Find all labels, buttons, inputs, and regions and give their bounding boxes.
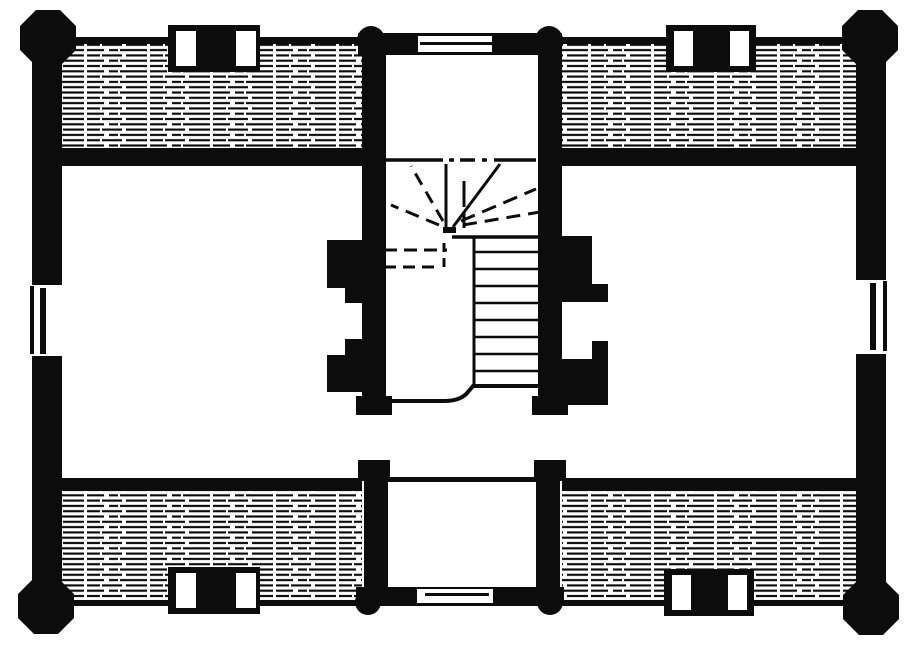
left-wall-lower bbox=[32, 356, 62, 592]
round-post-bottom-bay-left bbox=[355, 589, 381, 615]
bottom-bay-wall-left bbox=[364, 478, 388, 590]
top-bay-window-sash-line bbox=[420, 42, 492, 45]
right-wall-upper bbox=[856, 52, 886, 280]
right-wall-lower bbox=[856, 354, 886, 592]
rear-wall-left bbox=[62, 478, 362, 491]
flue-bottom-left-a bbox=[176, 573, 196, 608]
left-window-sash-bar bbox=[40, 288, 46, 354]
flue-top-right-b bbox=[730, 31, 749, 66]
round-post-top-bay-left bbox=[357, 26, 385, 54]
bottom-bay-room-line bbox=[388, 477, 536, 482]
right-window-sash-bar bbox=[870, 283, 876, 350]
bottom-bay-wall-left-cap bbox=[358, 460, 390, 481]
front-wall-right bbox=[538, 148, 856, 166]
bottom-bay-window-sash-line bbox=[425, 593, 489, 596]
bottom-bay-wall-right bbox=[536, 478, 560, 590]
flue-top-right-a bbox=[674, 31, 693, 66]
front-wall-left bbox=[62, 148, 386, 166]
flue-bottom-left-b bbox=[236, 573, 256, 608]
stair-hall-wall-left-foot bbox=[356, 396, 392, 415]
flue-bottom-right-b bbox=[728, 575, 747, 610]
flue-bottom-right-a bbox=[672, 575, 691, 610]
flue-top-left-b bbox=[236, 31, 256, 66]
bottom-bay-wall-right-cap bbox=[534, 460, 566, 481]
left-window-outer-line bbox=[30, 286, 34, 354]
right-window-outer-line bbox=[883, 281, 887, 351]
round-post-bottom-bay-right bbox=[537, 589, 563, 615]
stair-hall-wall-left bbox=[362, 33, 386, 398]
stair-hall-wall-right bbox=[538, 33, 562, 398]
rear-wall-right bbox=[562, 478, 856, 491]
floor-plan-diagram bbox=[0, 0, 918, 652]
floor-plan-page bbox=[0, 0, 918, 652]
round-post-top-bay-right bbox=[535, 26, 563, 54]
flue-top-left-a bbox=[176, 31, 196, 66]
left-wall-upper bbox=[32, 52, 62, 285]
